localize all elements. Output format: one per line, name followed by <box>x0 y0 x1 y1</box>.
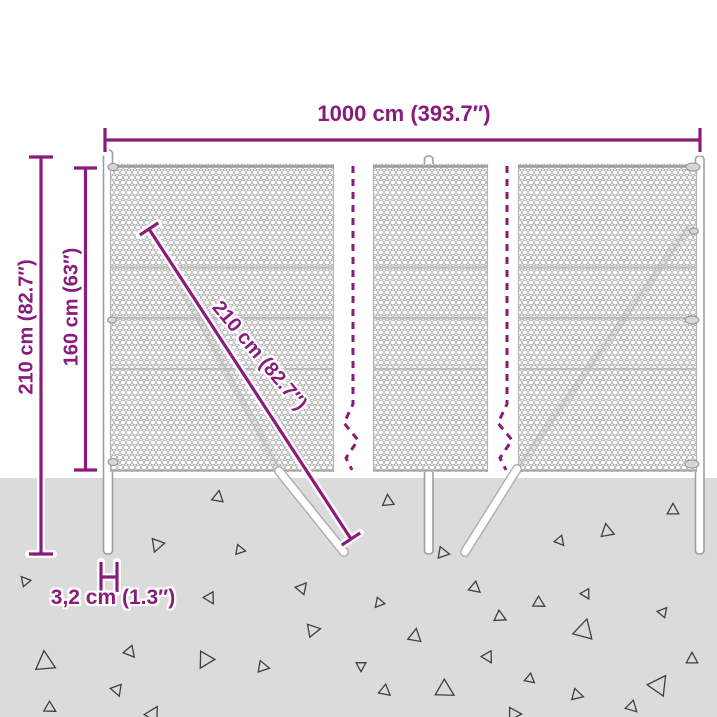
clamp-icon <box>685 460 699 468</box>
clamp-icon <box>686 163 700 171</box>
width-dimension-line <box>105 128 700 152</box>
fence-mesh <box>110 164 697 472</box>
clamp-icon <box>108 164 118 171</box>
post-width-label: 3,2 cm (1.3″) <box>51 586 175 610</box>
clamp-icon <box>685 316 699 324</box>
clamp-icon <box>108 317 117 323</box>
product-dimension-diagram: 1000 cm (393.7″) 210 cm (82.7″) 160 cm (… <box>0 0 717 717</box>
fence-height-label: 160 cm (63″) <box>61 248 84 367</box>
total-width-label: 1000 cm (393.7″) <box>317 101 490 127</box>
clamp-icon <box>690 228 699 234</box>
total-height-label: 210 cm (82.7″) <box>16 259 39 394</box>
clamp-icon <box>108 459 118 466</box>
